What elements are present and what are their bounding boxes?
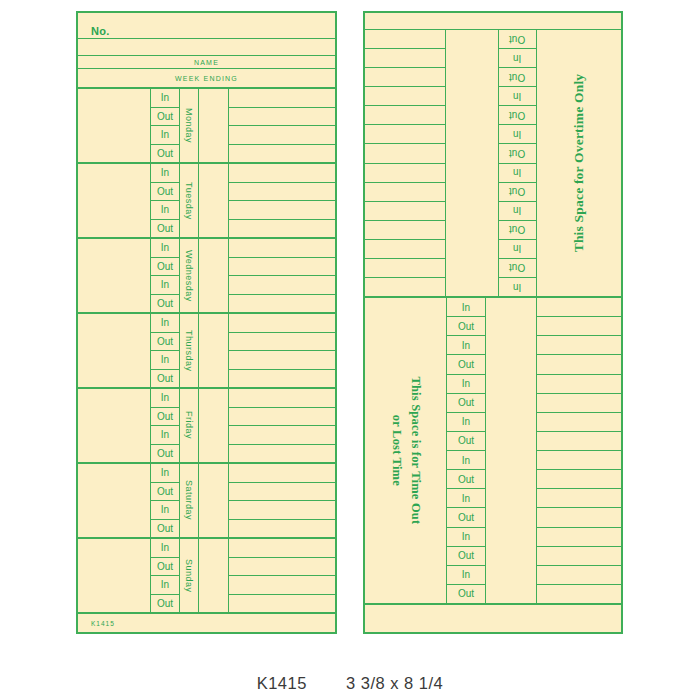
totals-lined-column xyxy=(229,464,335,537)
inout-label-inverted: In xyxy=(513,129,521,140)
inout-cell: Out xyxy=(447,585,485,603)
inout-label: In xyxy=(161,92,169,103)
inout-cell: In xyxy=(151,351,179,370)
inout-label: Out xyxy=(157,148,173,159)
day-name-label: Wednesday xyxy=(184,250,194,302)
inout-label-inverted: Out xyxy=(509,262,525,273)
narrow-blank-column xyxy=(199,539,229,612)
no-label: No. xyxy=(91,25,110,37)
inout-column: InOutInOut xyxy=(151,389,180,462)
day-block: InOutInOutMonday xyxy=(78,89,335,164)
front-day-table: InOutInOutMondayInOutInOutTuesdayInOutIn… xyxy=(78,87,335,612)
punch-area-cell xyxy=(78,89,151,162)
inout-label: Out xyxy=(157,411,173,422)
ruled-line-cell xyxy=(229,408,335,427)
ruled-line-cell xyxy=(229,445,335,463)
ruled-line-cell xyxy=(229,145,335,163)
inout-label-inverted: Out xyxy=(509,224,525,235)
inout-label: Out xyxy=(458,550,474,561)
ruled-line-cell xyxy=(537,547,621,566)
inout-label: In xyxy=(462,493,470,504)
inout-cell: In xyxy=(151,201,179,220)
inout-label: Out xyxy=(458,474,474,485)
day-block: InOutInOutSaturday xyxy=(78,464,335,539)
totals-lined-column xyxy=(229,539,335,612)
ruled-line-cell xyxy=(537,413,621,432)
inout-label: In xyxy=(161,504,169,515)
totals-lined-column xyxy=(229,239,335,312)
back-bottom-strip xyxy=(365,605,621,632)
inout-label: Out xyxy=(157,336,173,347)
inout-cell: In xyxy=(151,501,179,520)
inout-label: In xyxy=(462,531,470,542)
ruled-line-cell xyxy=(229,239,335,258)
ruled-line-cell xyxy=(537,528,621,547)
ruled-line-cell xyxy=(229,89,335,108)
totals-lined-column xyxy=(229,89,335,162)
ruled-line-cell xyxy=(229,201,335,220)
inout-label: In xyxy=(161,242,169,253)
ruled-line-cell xyxy=(537,394,621,413)
inout-label-inverted: Out xyxy=(509,148,525,159)
inout-label-inverted: In xyxy=(513,53,521,64)
inout-cell: Out xyxy=(151,558,179,577)
inout-cell: Out xyxy=(499,221,536,240)
inout-label: Out xyxy=(157,186,173,197)
totals-lined-column xyxy=(229,314,335,387)
inout-cell: In xyxy=(447,298,485,317)
ruled-line-cell xyxy=(537,566,621,585)
ruled-line-cell xyxy=(365,259,445,278)
inout-cell: Out xyxy=(151,145,179,163)
overtime-inout-column: OutInOutInOutInOutInOutInOutInOutIn xyxy=(499,30,537,296)
inout-cell: In xyxy=(151,539,179,558)
inout-cell: In xyxy=(151,164,179,183)
ruled-line-cell xyxy=(229,370,335,388)
inout-label: In xyxy=(462,378,470,389)
punch-area-cell xyxy=(78,539,151,612)
inout-cell: In xyxy=(499,202,536,221)
inout-label: In xyxy=(161,392,169,403)
ruled-line-cell xyxy=(229,501,335,520)
blank-row xyxy=(78,39,335,56)
ruled-line-cell xyxy=(537,298,621,317)
back-top-strip xyxy=(365,13,621,30)
ruled-line-cell xyxy=(365,68,445,87)
totals-lined-column xyxy=(229,164,335,237)
ruled-line-cell xyxy=(229,276,335,295)
ruled-line-cell xyxy=(365,144,445,163)
inout-cell: Out xyxy=(447,547,485,566)
inout-label-inverted: In xyxy=(513,282,521,293)
ruled-line-cell xyxy=(537,355,621,374)
narrow-blank-column xyxy=(199,89,229,162)
week-ending-label: WEEK ENDING xyxy=(175,75,238,82)
ruled-line-cell xyxy=(365,106,445,125)
ruled-line-cell xyxy=(229,220,335,238)
inout-cell: Out xyxy=(151,483,179,502)
day-name-label: Friday xyxy=(184,411,194,439)
inout-cell: In xyxy=(151,89,179,108)
inout-label: In xyxy=(462,455,470,466)
number-row: No. xyxy=(78,13,335,39)
inout-label-inverted: In xyxy=(513,167,521,178)
inout-label: In xyxy=(161,167,169,178)
timeout-lined-column xyxy=(537,298,621,603)
day-block: InOutInOutFriday xyxy=(78,389,335,464)
timeout-title-line1: This Space is for Time Out xyxy=(406,377,425,525)
ruled-line-cell xyxy=(365,30,445,49)
inout-label: Out xyxy=(157,523,173,534)
inout-label: In xyxy=(161,317,169,328)
day-name-label: Saturday xyxy=(184,480,194,520)
inout-label: In xyxy=(161,204,169,215)
inout-cell: In xyxy=(151,126,179,145)
inout-label: Out xyxy=(157,261,173,272)
day-name-label: Sunday xyxy=(184,559,194,593)
inout-cell: In xyxy=(447,336,485,355)
ruled-line-cell xyxy=(365,278,445,296)
ruled-line-cell xyxy=(365,49,445,68)
caption-dimensions: 3 3/8 x 8 1/4 xyxy=(346,674,443,692)
ruled-line-cell xyxy=(365,125,445,144)
inout-label: Out xyxy=(458,397,474,408)
inout-label: In xyxy=(161,429,169,440)
inout-cell: In xyxy=(447,413,485,432)
day-name-column: Tuesday xyxy=(180,164,199,237)
inout-label: Out xyxy=(458,435,474,446)
ruled-line-cell xyxy=(365,240,445,259)
inout-cell: In xyxy=(151,276,179,295)
inout-label: In xyxy=(462,416,470,427)
inout-cell: Out xyxy=(447,470,485,489)
name-label: NAME xyxy=(194,59,219,66)
inout-label: Out xyxy=(157,448,173,459)
inout-cell: In xyxy=(151,576,179,595)
inout-cell: Out xyxy=(499,30,536,49)
overtime-title-area: This Space for Overtime Only xyxy=(537,30,621,296)
ruled-line-cell xyxy=(537,451,621,470)
ruled-line-cell xyxy=(537,470,621,489)
inout-column: InOutInOut xyxy=(151,539,180,612)
punch-area-cell xyxy=(78,239,151,312)
footer-code: K1415 xyxy=(78,614,335,627)
narrow-blank-column xyxy=(199,464,229,537)
narrow-blank-column xyxy=(199,314,229,387)
inout-label: Out xyxy=(157,598,173,609)
inout-cell: In xyxy=(151,389,179,408)
ruled-line-cell xyxy=(229,126,335,145)
inout-label: In xyxy=(462,569,470,580)
inout-cell: Out xyxy=(151,258,179,277)
ruled-line-cell xyxy=(229,183,335,202)
day-name-column: Friday xyxy=(180,389,199,462)
inout-cell: In xyxy=(151,464,179,483)
inout-label: In xyxy=(161,279,169,290)
inout-cell: In xyxy=(447,489,485,508)
overtime-title: This Space for Overtime Only xyxy=(571,74,587,253)
day-block: InOutInOutWednesday xyxy=(78,239,335,314)
inout-column: InOutInOut xyxy=(151,239,180,312)
day-block: InOutInOutThursday xyxy=(78,314,335,389)
inout-label: In xyxy=(161,354,169,365)
timeout-title: This Space is for Time Out or Lost Time xyxy=(386,377,425,525)
inout-cell: Out xyxy=(151,595,179,613)
timeout-title-area: This Space is for Time Out or Lost Time xyxy=(365,298,447,603)
inout-cell: Out xyxy=(447,317,485,336)
narrow-blank-column xyxy=(199,239,229,312)
ruled-line-cell xyxy=(537,585,621,603)
product-photo-page: { "caption": { "sku": "K1415", "dimensio… xyxy=(0,0,700,700)
inout-column: InOutInOut xyxy=(151,164,180,237)
caption: K1415 3 3/8 x 8 1/4 xyxy=(0,674,700,693)
ruled-line-cell xyxy=(365,87,445,106)
inout-cell: In xyxy=(499,278,536,296)
inout-label: Out xyxy=(157,298,173,309)
inout-label-inverted: Out xyxy=(509,72,525,83)
inout-cell: Out xyxy=(499,183,536,202)
day-name-column: Sunday xyxy=(180,539,199,612)
punch-area-cell xyxy=(78,464,151,537)
inout-cell: Out xyxy=(151,408,179,427)
inout-cell: Out xyxy=(151,370,179,388)
inout-cell: In xyxy=(499,49,536,68)
ruled-line-cell xyxy=(229,333,335,352)
inout-label: Out xyxy=(157,373,173,384)
ruled-line-cell xyxy=(537,375,621,394)
inout-cell: Out xyxy=(151,520,179,538)
inout-label-inverted: In xyxy=(513,205,521,216)
ruled-line-cell xyxy=(365,183,445,202)
ruled-line-cell xyxy=(229,576,335,595)
ruled-line-cell xyxy=(229,164,335,183)
overtime-blank-column xyxy=(446,30,499,296)
day-name-label: Tuesday xyxy=(184,182,194,220)
inout-label: In xyxy=(161,129,169,140)
narrow-blank-column xyxy=(199,164,229,237)
ruled-line-cell xyxy=(365,202,445,221)
day-block: InOutInOutSunday xyxy=(78,539,335,612)
name-row: NAME xyxy=(78,56,335,69)
inout-cell: In xyxy=(151,314,179,333)
ruled-line-cell xyxy=(229,389,335,408)
inout-label: Out xyxy=(157,486,173,497)
inout-label: Out xyxy=(157,561,173,572)
timeout-section: This Space is for Time Out or Lost Time … xyxy=(365,298,621,605)
inout-label-inverted: Out xyxy=(509,110,525,121)
inout-label: In xyxy=(161,579,169,590)
ruled-line-cell xyxy=(229,351,335,370)
inout-cell: Out xyxy=(151,220,179,238)
inout-label: Out xyxy=(458,512,474,523)
inout-label-inverted: In xyxy=(513,243,521,254)
day-name-column: Wednesday xyxy=(180,239,199,312)
inout-label: Out xyxy=(458,588,474,599)
inout-label: In xyxy=(462,302,470,313)
inout-cell: Out xyxy=(447,394,485,413)
inout-label: Out xyxy=(157,223,173,234)
inout-cell: Out xyxy=(151,108,179,127)
inout-cell: Out xyxy=(151,333,179,352)
day-name-label: Thursday xyxy=(184,330,194,372)
punch-area-cell xyxy=(78,314,151,387)
day-name-label: Monday xyxy=(184,108,194,143)
inout-label: Out xyxy=(458,321,474,332)
inout-cell: Out xyxy=(151,183,179,202)
inout-cell: Out xyxy=(447,432,485,451)
ruled-line-cell xyxy=(229,426,335,445)
inout-cell: In xyxy=(499,240,536,259)
ruled-line-cell xyxy=(229,539,335,558)
overtime-section: OutInOutInOutInOutInOutInOutInOutIn This… xyxy=(365,30,621,298)
time-card-front: No. NAME WEEK ENDING InOutInOutMondayInO… xyxy=(76,11,337,634)
inout-cell: Out xyxy=(499,106,536,125)
ruled-line-cell xyxy=(229,295,335,313)
inout-cell: In xyxy=(447,528,485,547)
inout-label: In xyxy=(161,467,169,478)
inout-cell: Out xyxy=(447,508,485,527)
ruled-line-cell xyxy=(229,108,335,127)
inout-cell: Out xyxy=(447,355,485,374)
inout-label-inverted: Out xyxy=(509,186,525,197)
inout-cell: In xyxy=(499,125,536,144)
inout-label: In xyxy=(161,542,169,553)
ruled-line-cell xyxy=(229,483,335,502)
time-card-back: OutInOutInOutInOutInOutInOutInOutIn This… xyxy=(363,11,623,634)
inout-label-inverted: Out xyxy=(509,34,525,45)
ruled-line-cell xyxy=(537,336,621,355)
inout-cell: Out xyxy=(151,295,179,313)
day-name-column: Saturday xyxy=(180,464,199,537)
inout-cell: In xyxy=(151,426,179,445)
inout-cell: Out xyxy=(499,68,536,87)
overtime-lined-column xyxy=(365,30,446,296)
inout-cell: In xyxy=(499,87,536,106)
ruled-line-cell xyxy=(537,508,621,527)
caption-sku: K1415 xyxy=(257,674,307,692)
inout-column: InOutInOut xyxy=(151,89,180,162)
day-block: InOutInOutTuesday xyxy=(78,164,335,239)
inout-label-inverted: In xyxy=(513,91,521,102)
ruled-line-cell xyxy=(229,558,335,577)
ruled-line-cell xyxy=(365,164,445,183)
inout-cell: Out xyxy=(499,259,536,278)
ruled-line-cell xyxy=(229,520,335,538)
day-name-column: Thursday xyxy=(180,314,199,387)
ruled-line-cell xyxy=(229,595,335,613)
timeout-blank-column xyxy=(486,298,537,603)
inout-cell: In xyxy=(499,164,536,183)
ruled-line-cell xyxy=(229,258,335,277)
ruled-line-cell xyxy=(229,314,335,333)
punch-area-cell xyxy=(78,164,151,237)
inout-cell: Out xyxy=(151,445,179,463)
inout-cell: In xyxy=(447,451,485,470)
week-ending-row: WEEK ENDING xyxy=(78,69,335,87)
ruled-line-cell xyxy=(537,317,621,336)
inout-label: In xyxy=(462,340,470,351)
inout-column: InOutInOut xyxy=(151,464,180,537)
front-footer: K1415 xyxy=(78,612,335,632)
inout-column: InOutInOut xyxy=(151,314,180,387)
totals-lined-column xyxy=(229,389,335,462)
inout-cell: Out xyxy=(499,144,536,163)
narrow-blank-column xyxy=(199,389,229,462)
day-name-column: Monday xyxy=(180,89,199,162)
ruled-line-cell xyxy=(365,221,445,240)
ruled-line-cell xyxy=(537,432,621,451)
timeout-inout-column: InOutInOutInOutInOutInOutInOutInOutInOut xyxy=(447,298,486,603)
inout-cell: In xyxy=(151,239,179,258)
ruled-line-cell xyxy=(537,489,621,508)
timeout-title-line2: or Lost Time xyxy=(386,377,405,525)
punch-area-cell xyxy=(78,389,151,462)
inout-label: Out xyxy=(458,359,474,370)
inout-label: Out xyxy=(157,111,173,122)
inout-cell: In xyxy=(447,375,485,394)
ruled-line-cell xyxy=(229,464,335,483)
inout-cell: In xyxy=(447,566,485,585)
